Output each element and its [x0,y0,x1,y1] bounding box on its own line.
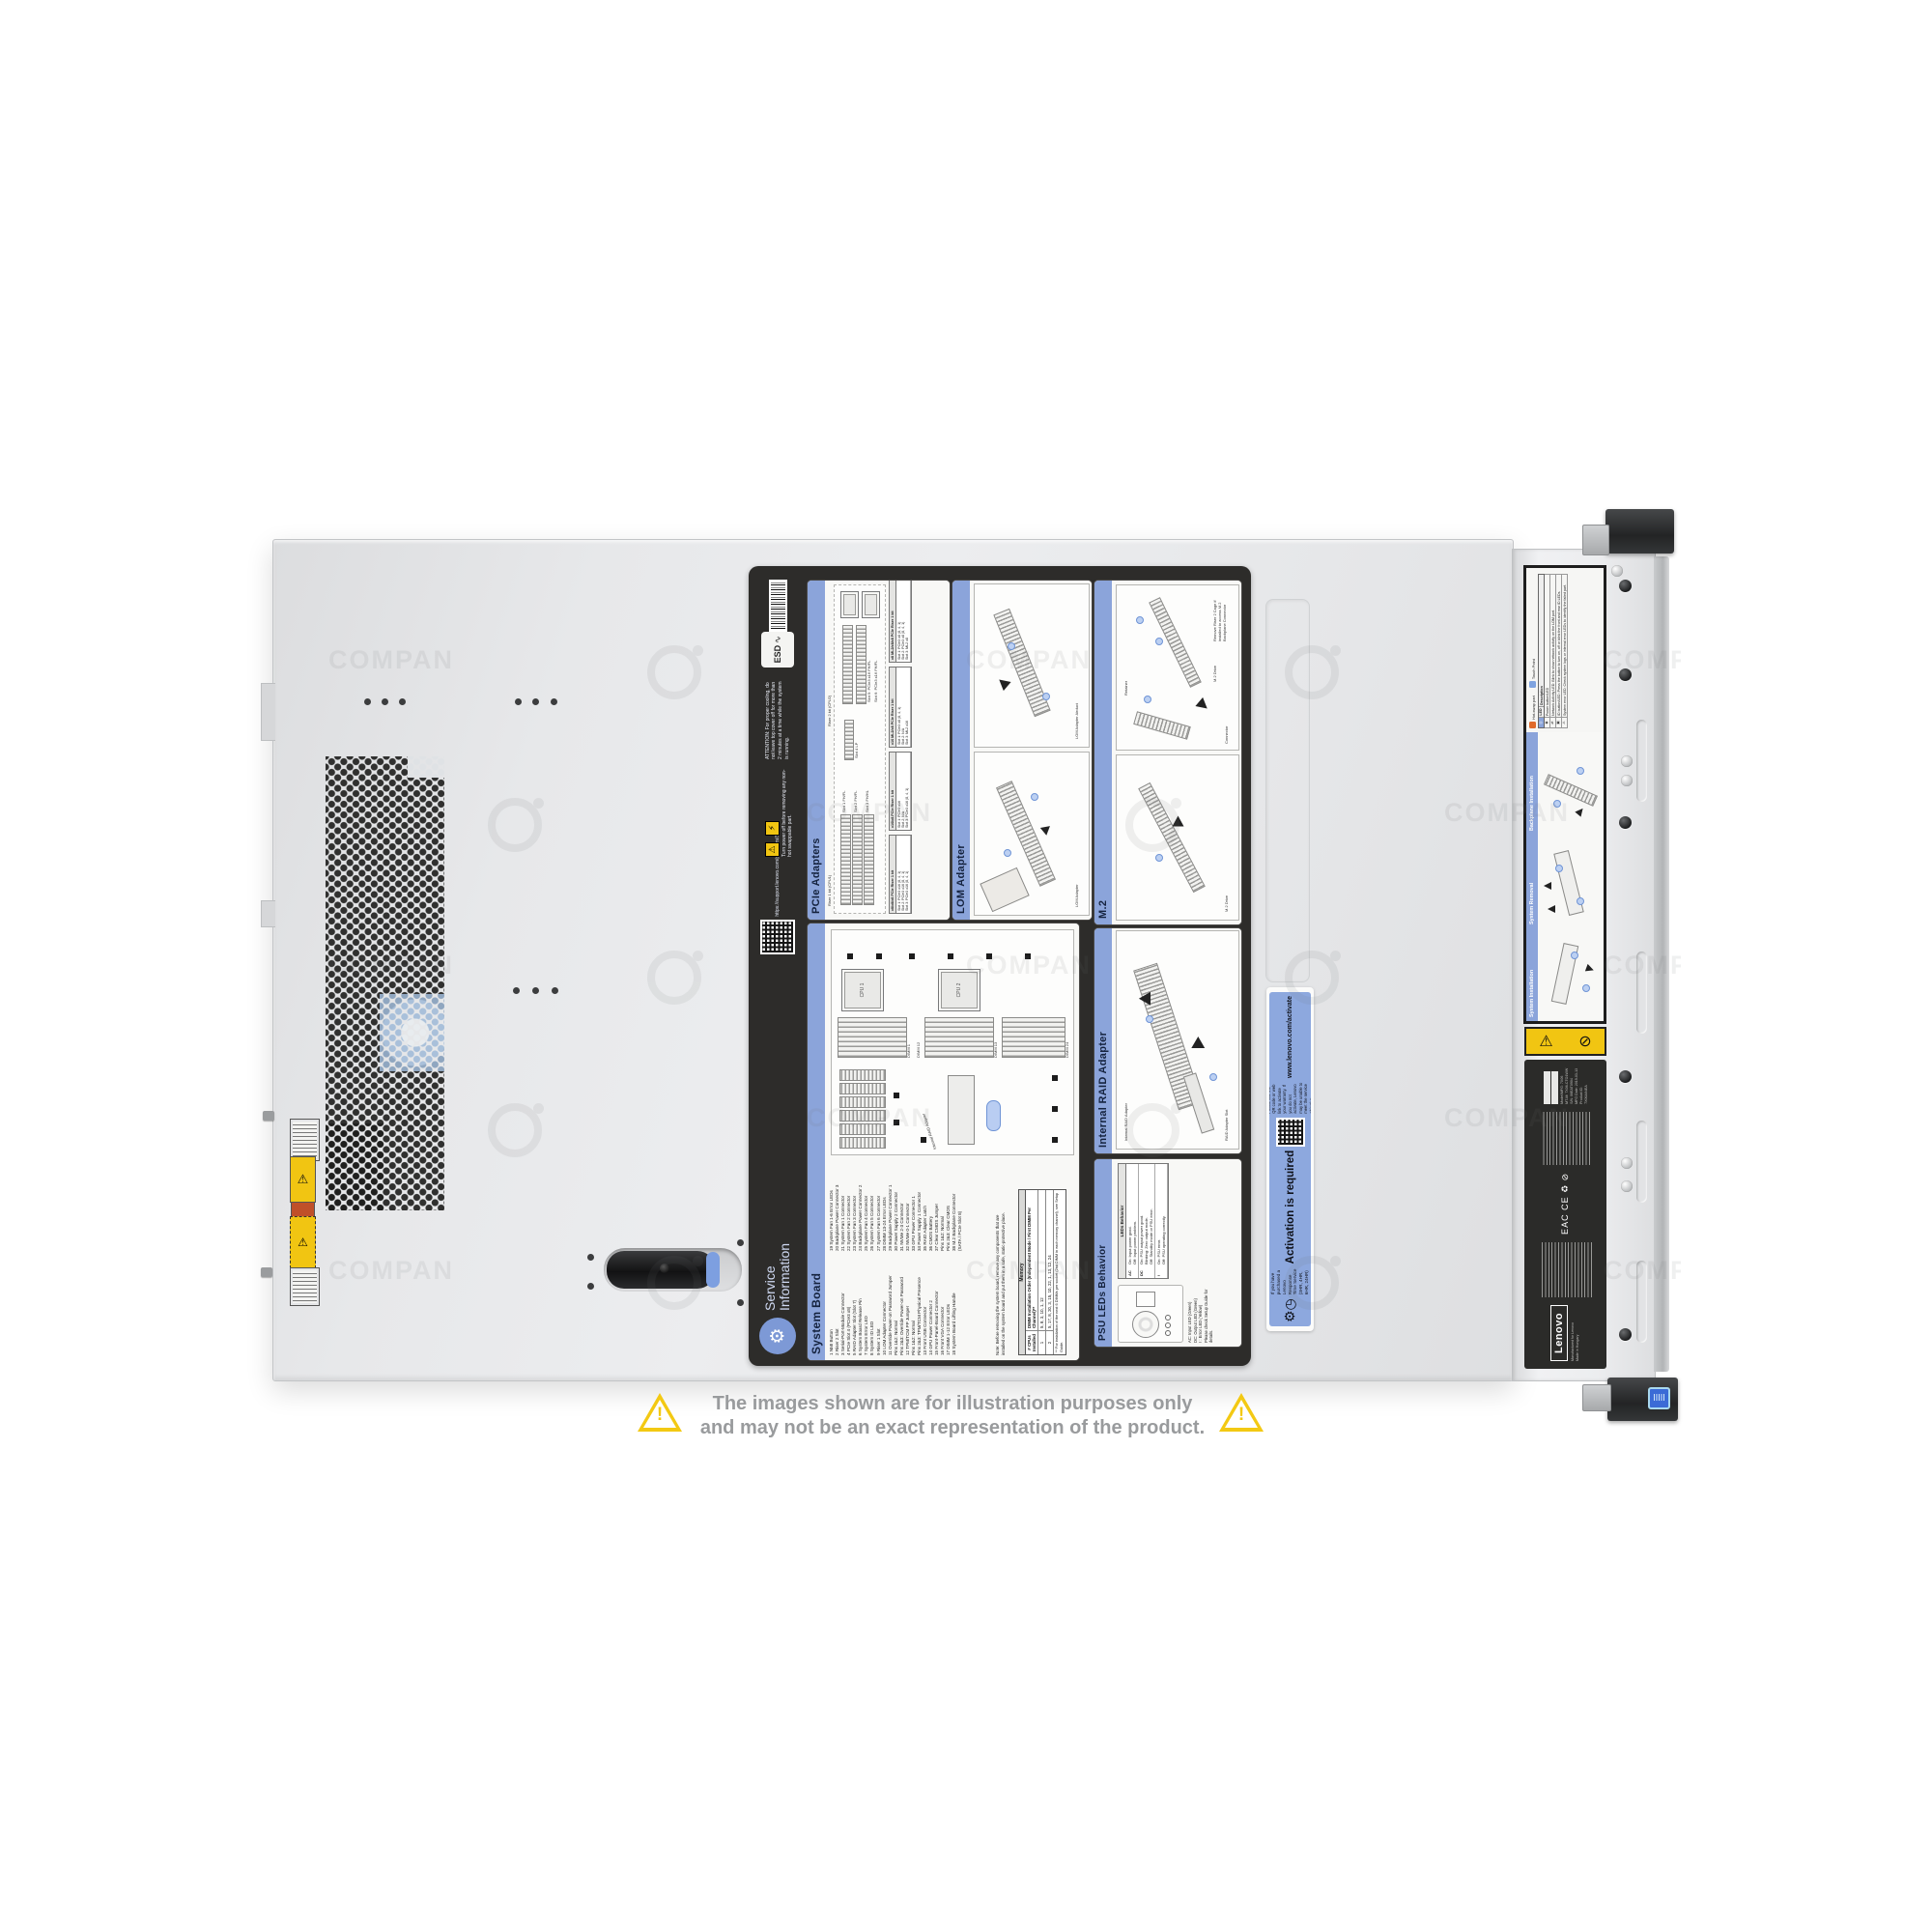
intel-xeon-badge [1648,1387,1670,1409]
led-legend-table: ◎ LED Description ◉Power button/LED ⇄Net… [1538,574,1568,728]
error-icon: ⚠ [1562,717,1567,727]
psu-vent-grille [326,756,444,1210]
vent-light-patch [408,756,444,778]
riser2-label: Riser 2 kit (CPU2) [828,696,833,726]
vent-shade [326,1123,384,1210]
lom-diagram-2: LOM Adapter Airduct [974,583,1090,748]
rack-thumbscrew-top [1582,525,1609,555]
service-information-label: ⚙ Service Information https://support.le… [749,566,1251,1366]
electrical-hazard-label: ⚠ [290,1156,316,1203]
reg-barcode [1544,1071,1550,1104]
system-board-legend-left: 1 NMI Button 2 Riser 2 Slot 3 Serial-Por… [829,1257,963,1355]
model-info-lines: Model/MFG: 7X06 MT-M: 7X06-CTO1WW S/N: 0… [1560,1067,1589,1104]
service-label-strip: ⚙ Service Information https://support.le… [751,566,805,1366]
network-icon: ⇄ [1550,717,1555,727]
activation-body: Please use the QR code or web link to ac… [1269,1082,1311,1114]
raid-diagram: Internal RAID Adapter RAID Adapter Slot [1116,930,1239,1150]
chassis-left-pin [263,1111,274,1121]
power-icon: ◉ [1545,717,1549,727]
panel-internal-raid: Internal RAID Adapter Internal RAID Adap… [1094,928,1241,1153]
product-photo: ⚠ ⚠ ⚙ Service Information [0,0,1932,1932]
front-label-legend: Hot-swap part Touch Point ◎ LED Descript… [1526,568,1604,734]
memory-table: Memory # CPUs Installed DIMM Installatio… [1018,1189,1066,1355]
warning-small-label [291,1202,315,1217]
panel-system-board: System Board 1 NMI Button 2 Riser 2 Slot… [808,923,1079,1360]
panel-psu-leds: PSU LEDs Behavior AC: Input LED (Green) … [1094,1159,1241,1347]
front-label-backplane-installation: Backplane Installation [1526,732,1604,837]
id-icon: ▣ [1556,717,1561,727]
touch-point-swatch [1529,681,1536,688]
made-in-lines: Manufactured for Lenovo Made in Hungary [1571,1305,1580,1361]
hot-swap-swatch [1529,722,1536,728]
reg-barcode [1551,1071,1558,1104]
panel-m2: M.2 M.2 Drive Ret [1094,581,1241,924]
no-touch-icon: ⊘ [1578,1032,1591,1051]
cover-release-latch [604,1248,742,1292]
pcie-riser-table: x8/x8/x8 PCIe Riser 1 kit Slot 1: PCIe3 … [889,835,912,914]
lom-panel-title: LOM Adapter [952,581,970,920]
latch-lock-screw [660,1264,669,1273]
rack-thumbscrew-bottom [1582,1384,1611,1411]
gear-clock-icon: ⚙◷ [1282,1298,1298,1322]
psu-rating-label [290,1119,320,1161]
cpu1-outline: CPU 1 [841,969,884,1011]
lenovo-logo: Lenovo [1550,1305,1568,1361]
m2-diagram-1: M.2 Drive [1116,754,1239,921]
pcie-riser-table: x8 ML2/x8/x8 PCIe Riser 1 kit Slot 1: PC… [889,581,912,663]
support-qr-code [760,920,795,954]
m2-note: Remove Riser 2 Cage if installed to acce… [1213,589,1227,641]
panel-lom-adapter: LOM Adapter LOM Adapter [952,581,1092,920]
activation-label: ⚙◷ If you have purchased a Lenovo Respon… [1266,987,1314,1331]
service-wrench-icon: ⚙ [759,1318,796,1354]
support-qr-url: https://support.lenovo.com/p/servers/SR6… [775,867,781,917]
disclaimer-warning-icon-right: ! [1219,1391,1264,1434]
chassis-left-tab [261,683,275,741]
disclaimer-text: The images shown are for illustration pu… [689,1392,1216,1440]
panel-pcie-adapters: PCIe Adapters Riser 1 kit (CPU1) Riser 2… [808,581,950,920]
pcie-diagram: Slot 1 FH/FL Slot 2 FH/FL Slot 3 FH/HL S… [834,584,886,914]
chassis-left-pin [261,1267,272,1277]
m2-diagram-2: Retainer Connector M.2 Drive Remove Rise… [1116,584,1239,751]
activation-intro: If you have purchased a Lenovo Response … [1270,1267,1311,1294]
service-title-line2: Information [778,1243,792,1311]
server-chassis: ⚠ ⚠ ⚙ Service Information [261,539,1681,1389]
warning-icon: ⚡ [765,821,780,836]
regulatory-label: Lenovo Manufactured for Lenovo Made in H… [1524,1060,1606,1369]
chassis-left-tab [261,900,275,927]
front-label-system-installation: System Installation [1526,928,1604,1021]
caution-strip-label: ⚠ ⊘ [1524,1027,1606,1056]
cover-groove [1265,599,1310,982]
psu-led-table: LEDs Behavior AC On: Input power good. O… [1118,1163,1169,1279]
psu-led-legend: AC: Input LED (Green) DC: Output LED (Gr… [1187,1283,1214,1343]
esd-text: ESD [773,645,782,664]
front-label-system-removal: System Removal [1526,835,1604,930]
front-instruction-label: Hot-swap part Touch Point ◎ LED Descript… [1523,565,1606,1024]
system-board-title: System Board [808,923,825,1360]
raid-panel-title: Internal RAID Adapter [1094,928,1112,1153]
lom-diagram-1: LOM Adapter [974,752,1090,916]
disclaimer-warning-icon-left: ! [638,1391,682,1434]
psu-drawing [1118,1285,1183,1343]
activation-qr-code [1276,1118,1305,1147]
cert-marks: EAC CE ♻ ⊘ [1560,1173,1571,1235]
electrical-hazard-label-2: ⚠ [290,1216,316,1268]
cpu2-outline: CPU 2 [938,969,980,1011]
riser1-label: Riser 1 kit (CPU1) [828,875,833,906]
m2-panel-title: M.2 [1094,581,1112,924]
pcie-panel-title: PCIe Adapters [808,581,825,920]
rack-latch-top [1605,509,1674,554]
activation-url: www.lenovo.com/activate [1287,996,1293,1078]
system-board-note: Note: Before removing the system board, … [995,1210,1006,1355]
system-board-legend-right: 19 System Fan 1-6 Error LEDs 20 Backplan… [829,1158,963,1251]
service-title-line1: Service [763,1243,778,1311]
psu-fan-blue [380,994,444,1071]
warning-triangle-icon: ⚠ [1539,1032,1552,1051]
esd-icon: ESD∿ [761,632,794,668]
warning-icon: ⚠ [765,842,780,857]
psu-panel-title: PSU LEDs Behavior [1094,1159,1112,1347]
chassis-side-edge [1654,556,1669,1372]
pcie-riser-table: x16 ML2/x8 PCIe Riser 1 kit Slot 1: PCIe… [889,667,912,748]
power-off-warning: Turn power off before removing any non-h… [781,767,794,857]
activation-heading: Activation is required [1285,1151,1296,1264]
attention-text: ATTENTION: For proper cooling, do not le… [765,679,791,759]
label-barcode [769,580,787,632]
pcie-riser-table: x16/x8 PCIe Riser 1 kit Slot 1: PCIe3 x1… [889,752,912,831]
latch-blue-touch-point [706,1252,720,1288]
system-board-diagram: DIMM 1 CPU 1 DIMM 12 DIMM 13 CPU 2 DIMM … [831,929,1074,1155]
psu-rating-label-2 [290,1267,320,1306]
